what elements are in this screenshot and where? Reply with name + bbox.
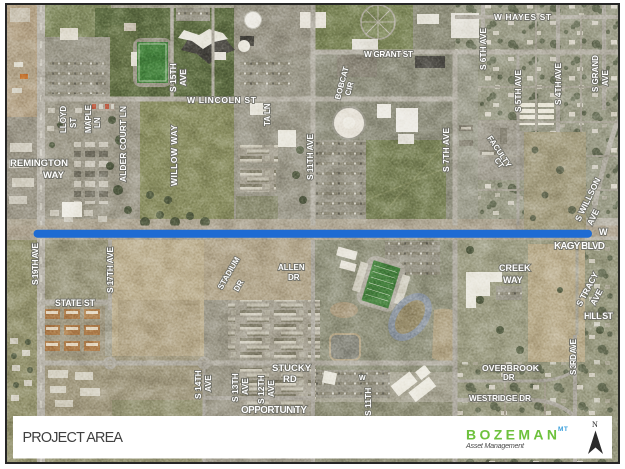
- svg-text:AVE: AVE: [266, 380, 276, 397]
- svg-text:S 17TH AVE: S 17TH AVE: [105, 247, 115, 293]
- svg-text:S 6TH AVE: S 6TH AVE: [478, 28, 488, 70]
- svg-text:LLOYD: LLOYD: [59, 106, 68, 133]
- svg-text:N: N: [592, 420, 598, 429]
- svg-text:S 12TH: S 12TH: [256, 375, 266, 404]
- svg-text:S 19TH AVE: S 19TH AVE: [30, 243, 40, 285]
- svg-text:WAY: WAY: [503, 275, 523, 285]
- svg-text:W: W: [359, 375, 366, 382]
- svg-text:HILL ST: HILL ST: [584, 311, 614, 321]
- svg-text:AVE: AVE: [203, 375, 213, 392]
- svg-text:W HAYES ST: W HAYES ST: [494, 12, 551, 22]
- svg-text:S 13TH: S 13TH: [230, 373, 240, 402]
- svg-text:DR: DR: [288, 273, 300, 282]
- svg-text:S 15TH: S 15TH: [168, 63, 178, 92]
- svg-text:ALDER COURT LN: ALDER COURT LN: [118, 106, 128, 182]
- svg-text:S 3RD AVE: S 3RD AVE: [569, 338, 578, 375]
- svg-text:PROJECT AREA: PROJECT AREA: [23, 430, 124, 446]
- svg-text:S GRAND: S GRAND: [591, 55, 600, 92]
- svg-text:TA LN: TA LN: [263, 103, 272, 126]
- svg-text:W GRANT ST: W GRANT ST: [364, 49, 413, 59]
- svg-text:S 7TH AVE: S 7TH AVE: [441, 128, 451, 172]
- svg-text:STUCKY: STUCKY: [272, 363, 312, 374]
- svg-text:MAPLE: MAPLE: [84, 104, 93, 133]
- svg-text:WESTRIDGE DR: WESTRIDGE DR: [469, 393, 531, 403]
- svg-text:OPPORTUNITY: OPPORTUNITY: [241, 405, 307, 416]
- svg-text:WILLOW WAY: WILLOW WAY: [169, 125, 179, 186]
- svg-text:ST: ST: [69, 118, 78, 128]
- svg-text:W LINCOLN ST: W LINCOLN ST: [187, 95, 257, 105]
- svg-text:REMINGTON: REMINGTON: [10, 158, 68, 169]
- svg-text:MT: MT: [558, 426, 568, 433]
- svg-text:CREEK: CREEK: [499, 263, 531, 273]
- svg-text:AVE: AVE: [178, 69, 188, 86]
- svg-text:W: W: [599, 227, 608, 237]
- svg-text:STATE ST: STATE ST: [55, 298, 96, 308]
- svg-text:OVERBROOK: OVERBROOK: [482, 363, 540, 373]
- svg-text:KAGY BLVD: KAGY BLVD: [554, 241, 605, 252]
- svg-text:S 11TH AVE: S 11TH AVE: [305, 134, 315, 180]
- svg-text:LN: LN: [93, 117, 102, 128]
- svg-text:S 4TH AVE: S 4TH AVE: [553, 63, 563, 105]
- svg-text:WAY: WAY: [43, 170, 65, 181]
- svg-text:Asset Management: Asset Management: [465, 441, 525, 450]
- svg-text:AVE: AVE: [601, 69, 610, 86]
- svg-text:S 14TH: S 14TH: [193, 370, 203, 399]
- svg-text:RD: RD: [283, 374, 297, 385]
- svg-text:ALLEN: ALLEN: [278, 263, 305, 272]
- svg-text:DR: DR: [503, 373, 515, 382]
- svg-text:S 11TH: S 11TH: [363, 388, 373, 416]
- svg-text:AVE: AVE: [240, 378, 250, 395]
- svg-text:S 5TH AVE: S 5TH AVE: [513, 70, 523, 112]
